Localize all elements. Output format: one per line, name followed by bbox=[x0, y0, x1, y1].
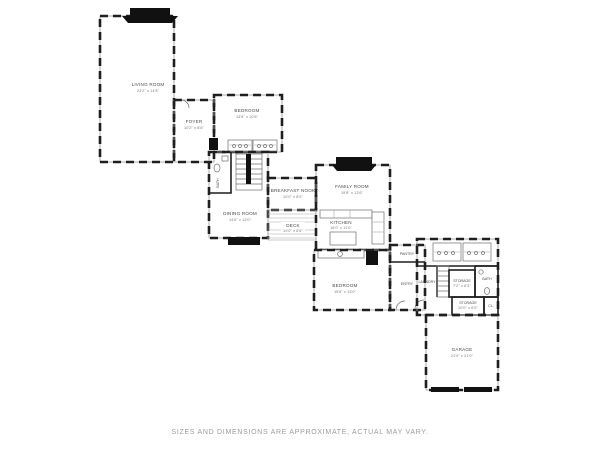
room-storage-upper: STORAGE 7'2" x 6'3" bbox=[449, 270, 475, 297]
room-label-foyer: FOYER bbox=[186, 119, 203, 124]
room-laundry: LAUNDRY bbox=[418, 266, 437, 297]
room-label-closet: CL. bbox=[488, 304, 494, 308]
toilet-icon bbox=[484, 288, 489, 295]
stairs-icon bbox=[236, 154, 262, 190]
room-entry: PANTRY ENTRY bbox=[390, 245, 425, 310]
room-dims-kitchen: 16'0" x 11'0" bbox=[330, 226, 352, 230]
closet-hangers-icon bbox=[433, 243, 491, 261]
stairs-icon bbox=[437, 266, 449, 297]
sink-icon bbox=[479, 270, 483, 274]
room-kitchen: KITCHEN 16'0" x 11'0" bbox=[318, 210, 384, 265]
room-dims-storage-upper: 7'2" x 6'3" bbox=[453, 284, 471, 288]
floor-plan-page: LIVING ROOM 24'2" x 14'8" FOYER 10'2" x … bbox=[0, 0, 600, 450]
room-label-breakfast-nook: BREAKFAST NOOK bbox=[271, 188, 316, 193]
room-label-storage-lower: STORAGE bbox=[459, 301, 477, 305]
chimney-icon bbox=[366, 250, 378, 265]
room-label-storage-upper: STORAGE bbox=[453, 279, 471, 283]
toilet-icon bbox=[214, 164, 220, 172]
room-dims-deck: 10'0" x 8'6" bbox=[283, 229, 303, 233]
room-label-living-room: LIVING ROOM bbox=[132, 82, 165, 87]
room-label-powder-room: BATH bbox=[216, 178, 220, 188]
room-dims-living-room: 24'2" x 14'8" bbox=[137, 89, 160, 93]
room-dims-breakfast-nook: 10'0" x 8'0" bbox=[283, 195, 303, 199]
door-arc-icon bbox=[396, 301, 405, 310]
room-dims-family-room: 19'8" x 13'6" bbox=[341, 191, 364, 195]
fireplace-icon bbox=[122, 8, 178, 23]
floor-plan-drawing: LIVING ROOM 24'2" x 14'8" FOYER 10'2" x … bbox=[0, 0, 600, 450]
fireplace-icon bbox=[332, 157, 376, 171]
room-dims-storage-lower: 10'0" x 6'0" bbox=[458, 306, 478, 310]
room-garage: GARAGE 21'0" x 21'0" bbox=[426, 315, 498, 392]
room-dims-bedroom-lower: 15'6" x 13'0" bbox=[334, 290, 357, 294]
room-label-bath-upper: BATH bbox=[482, 277, 492, 281]
room-label-kitchen: KITCHEN bbox=[330, 220, 352, 225]
room-label-pantry: PANTRY bbox=[400, 252, 415, 256]
room-bedroom-lower: BEDROOM 15'6" x 13'0" bbox=[314, 250, 390, 310]
room-deck: DECK 10'0" x 8'6" bbox=[268, 210, 316, 240]
room-bath-upper: BATH bbox=[475, 266, 498, 297]
room-label-entry: ENTRY bbox=[401, 282, 414, 286]
room-bedroom-upper: BEDROOM 13'8" x 10'6" bbox=[209, 95, 282, 152]
room-living-room: LIVING ROOM 24'2" x 14'8" bbox=[100, 8, 178, 162]
room-label-dining-room: DINING ROOM bbox=[223, 211, 257, 216]
room-label-bedroom-lower: BEDROOM bbox=[332, 283, 357, 288]
disclaimer-text: SIZES AND DIMENSIONS ARE APPROXIMATE, AC… bbox=[172, 429, 429, 436]
utility-block: LAUNDRY STORAGE 7'2" x 6'3" BATH STORAG bbox=[417, 239, 498, 315]
room-powder-room: BATH bbox=[209, 152, 231, 193]
closet-hangers-icon bbox=[228, 140, 277, 151]
room-label-laundry: LAUNDRY bbox=[418, 280, 436, 284]
room-label-garage: GARAGE bbox=[452, 347, 473, 352]
room-dims-bedroom-upper: 13'8" x 10'6" bbox=[236, 115, 259, 119]
room-breakfast-nook: BREAKFAST NOOK 10'0" x 8'0" bbox=[268, 178, 316, 210]
room-dims-garage: 21'0" x 21'0" bbox=[451, 354, 474, 358]
room-storage-lower: STORAGE 10'0" x 6'0" bbox=[452, 297, 484, 315]
room-dining-room: BATH DINING ROOM 14'6" x 13'0" bbox=[209, 152, 268, 245]
sink-icon bbox=[222, 156, 228, 161]
room-dims-foyer: 10'2" x 8'6" bbox=[184, 126, 204, 130]
chimney-icon bbox=[209, 138, 218, 150]
kitchen-island-icon bbox=[330, 232, 356, 245]
room-dims-dining-room: 14'6" x 13'0" bbox=[229, 218, 252, 222]
room-label-family-room: FAMILY ROOM bbox=[335, 184, 369, 189]
room-label-bedroom-upper: BEDROOM bbox=[234, 108, 259, 113]
room-label-deck: DECK bbox=[286, 223, 300, 228]
room-closet: CL. bbox=[484, 297, 498, 315]
front-stoop-icon bbox=[228, 237, 260, 245]
